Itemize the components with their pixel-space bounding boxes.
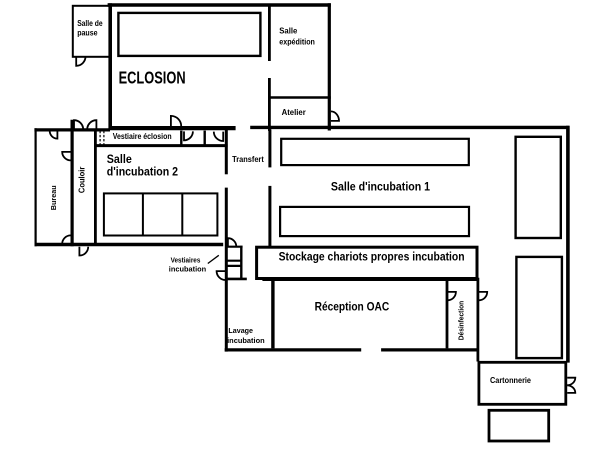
svg-text:Salle de: Salle de	[77, 19, 103, 28]
svg-text:Vestiaire éclosion: Vestiaire éclosion	[113, 132, 172, 141]
svg-text:Lavage: Lavage	[228, 326, 253, 335]
svg-text:Bureau: Bureau	[49, 185, 58, 210]
svg-text:Cartonnerie: Cartonnerie	[490, 376, 531, 385]
svg-text:Salle: Salle	[279, 26, 298, 35]
svg-text:Stockage chariots propres incu: Stockage chariots propres incubation	[279, 249, 465, 263]
svg-text:Désinfection: Désinfection	[459, 301, 466, 340]
svg-text:Salle d'incubation 1: Salle d'incubation 1	[331, 181, 431, 194]
svg-text:ECLOSION: ECLOSION	[119, 67, 186, 87]
svg-text:expédition: expédition	[279, 38, 315, 47]
svg-text:Vestiaires: Vestiaires	[171, 255, 201, 264]
svg-text:incubation: incubation	[169, 264, 207, 273]
svg-text:Atelier: Atelier	[282, 108, 306, 117]
svg-text:Transfert: Transfert	[232, 155, 264, 164]
svg-text:pause: pause	[77, 28, 98, 37]
svg-text:Couloir: Couloir	[77, 167, 86, 193]
svg-text:Réception OAC: Réception OAC	[315, 300, 390, 314]
svg-text:d'incubation 2: d'incubation 2	[107, 165, 178, 179]
svg-text:incubation: incubation	[227, 336, 265, 345]
